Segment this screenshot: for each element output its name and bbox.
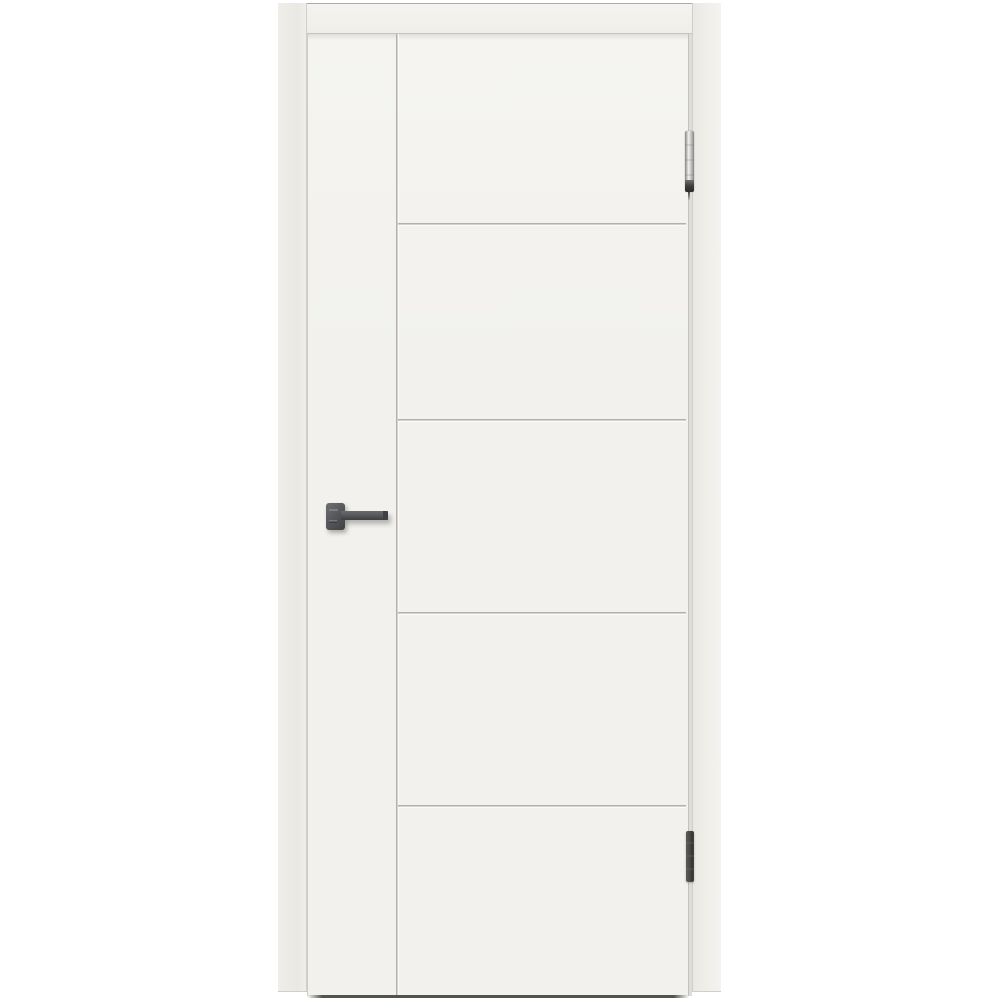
rosette-screw-slot [329, 509, 338, 511]
door-panel-3 [399, 422, 686, 612]
door-bottom-shadow [307, 995, 689, 998]
door-panel-4 [399, 615, 686, 805]
door-product-photo [0, 0, 1000, 1000]
door-panel-5 [399, 808, 686, 996]
door-frame-head-jamb [278, 3, 721, 34]
door-panel-1 [399, 34, 686, 223]
top-hinge-pin [688, 192, 690, 200]
rosette-latch-slot [329, 520, 337, 523]
door-frame-right-jamb [692, 3, 721, 992]
top-hinge [685, 131, 694, 192]
door-handle [326, 503, 390, 535]
handle-lever [341, 511, 388, 520]
door-panel-2 [399, 226, 686, 419]
door-frame-left-jamb [278, 3, 307, 992]
bottom-hinge [686, 831, 694, 882]
handle-lever-end [383, 511, 388, 520]
top-hinge-cap [685, 180, 694, 192]
